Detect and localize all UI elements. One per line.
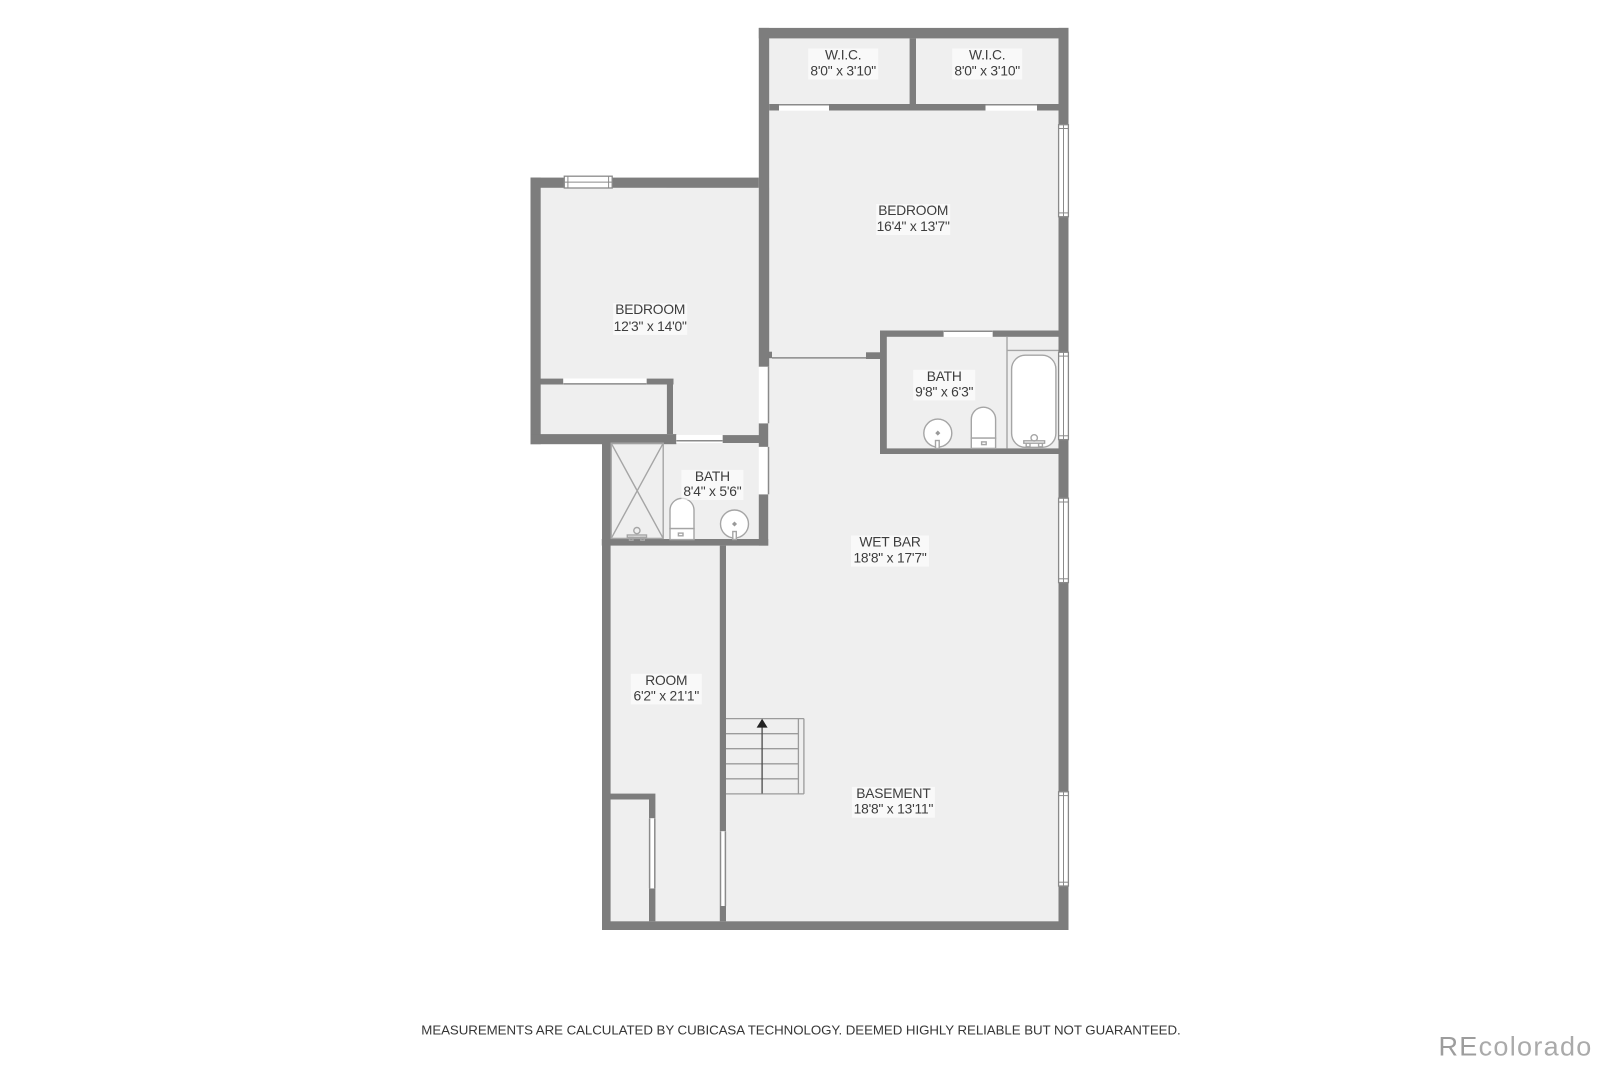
- svg-text:BEDROOM: BEDROOM: [878, 203, 948, 218]
- svg-text:BATH: BATH: [927, 369, 962, 384]
- svg-text:8'4" x 5'6": 8'4" x 5'6": [683, 484, 741, 499]
- svg-text:ROOM: ROOM: [645, 673, 687, 688]
- svg-text:WET BAR: WET BAR: [859, 535, 920, 550]
- svg-text:8'0" x 3'10": 8'0" x 3'10": [810, 64, 876, 79]
- svg-text:BASEMENT: BASEMENT: [856, 786, 931, 801]
- svg-text:BEDROOM: BEDROOM: [615, 302, 685, 317]
- svg-text:MEASUREMENTS ARE CALCULATED BY: MEASUREMENTS ARE CALCULATED BY CUBICASA …: [421, 1022, 1180, 1037]
- svg-text:BATH: BATH: [695, 469, 730, 484]
- svg-text:18'8" x 17'7": 18'8" x 17'7": [853, 551, 926, 566]
- svg-text:6'2" x 21'1": 6'2" x 21'1": [633, 688, 699, 703]
- svg-text:9'8" x 6'3": 9'8" x 6'3": [915, 384, 973, 399]
- svg-text:12'3" x 14'0": 12'3" x 14'0": [614, 319, 687, 334]
- svg-text:REcolorado: REcolorado: [1439, 1032, 1593, 1062]
- svg-text:16'4" x 13'7": 16'4" x 13'7": [877, 219, 950, 234]
- svg-text:W.I.C.: W.I.C.: [825, 48, 861, 63]
- svg-text:W.I.C.: W.I.C.: [969, 48, 1005, 63]
- svg-text:18'8" x 13'11": 18'8" x 13'11": [854, 802, 934, 817]
- svg-text:8'0" x 3'10": 8'0" x 3'10": [954, 64, 1020, 79]
